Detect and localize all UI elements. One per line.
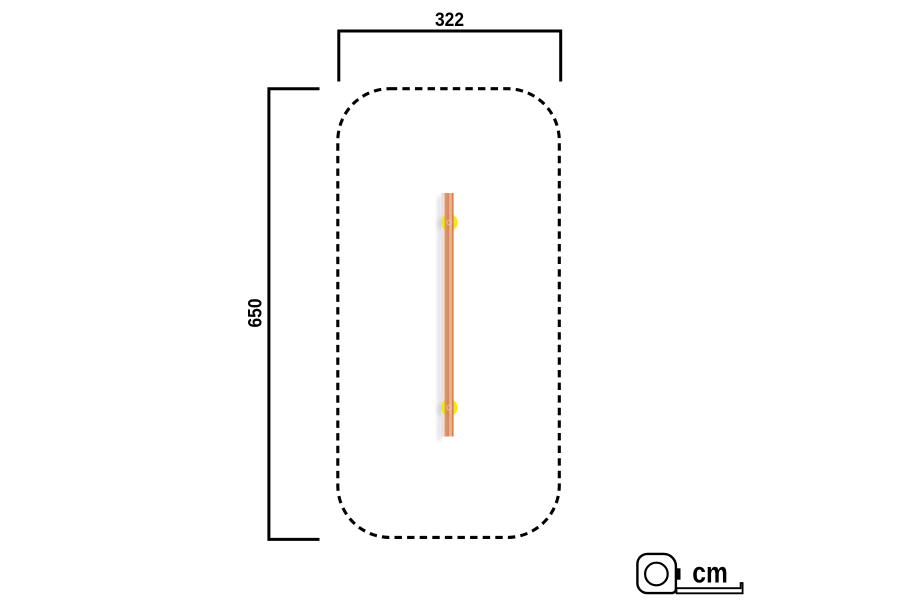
svg-text:650: 650 [244,298,266,327]
svg-text:cm: cm [692,557,728,590]
svg-text:322: 322 [435,9,464,31]
